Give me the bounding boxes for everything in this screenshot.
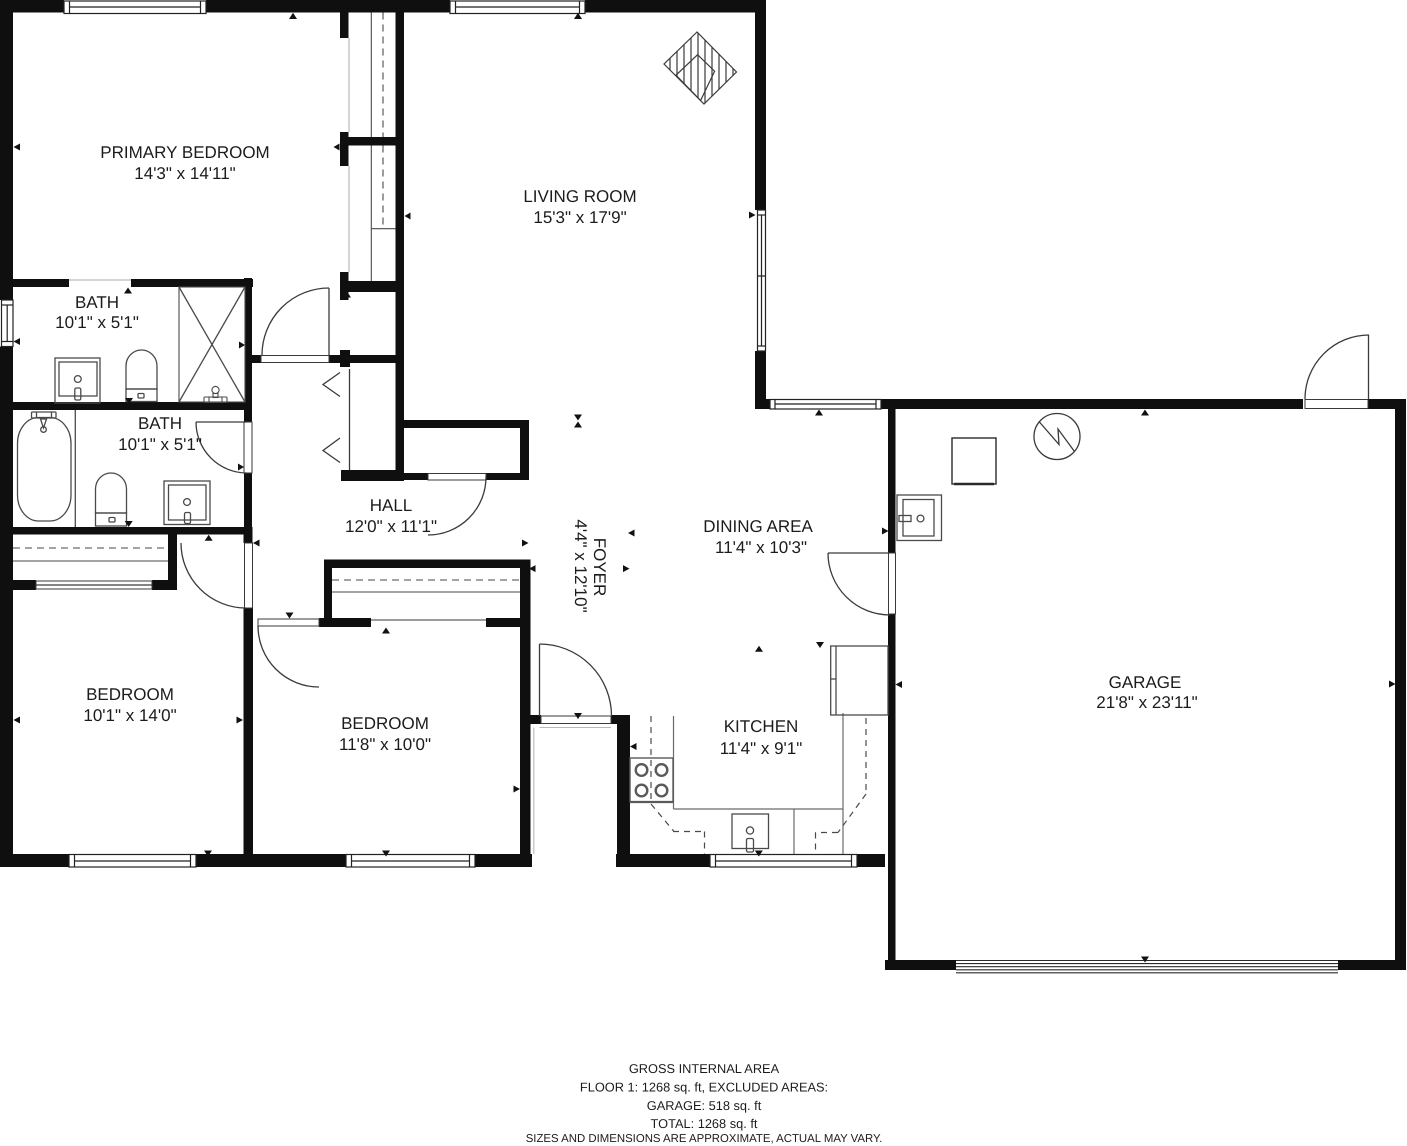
svg-text:BEDROOM: BEDROOM [86,685,174,704]
svg-text:21'8" x 23'11": 21'8" x 23'11" [1096,693,1197,712]
svg-text:11'8" x 10'0": 11'8" x 10'0" [339,735,431,754]
svg-text:4'4" x 12'10": 4'4" x 12'10" [571,519,590,612]
svg-text:14'3" x 14'11": 14'3" x 14'11" [134,164,235,183]
svg-text:PRIMARY BEDROOM: PRIMARY BEDROOM [100,143,269,162]
svg-text:BEDROOM: BEDROOM [341,714,429,733]
svg-text:FOYER: FOYER [590,538,609,597]
svg-text:GROSS INTERNAL AREA: GROSS INTERNAL AREA [629,1061,780,1076]
svg-text:TOTAL: 1268 sq. ft: TOTAL: 1268 sq. ft [651,1116,758,1131]
svg-text:BATH: BATH [75,293,119,312]
svg-text:10'1" x 14'0": 10'1" x 14'0" [83,706,176,725]
svg-text:12'0" x 11'1": 12'0" x 11'1" [345,517,437,536]
svg-text:GARAGE: GARAGE [1109,673,1182,692]
svg-text:FLOOR 1: 1268 sq. ft, EXCLUDED: FLOOR 1: 1268 sq. ft, EXCLUDED AREAS: [580,1080,828,1095]
svg-text:11'4" x 10'3": 11'4" x 10'3" [715,538,807,557]
svg-text:GARAGE: 518 sq. ft: GARAGE: 518 sq. ft [647,1098,762,1113]
svg-text:10'1" x 5'1": 10'1" x 5'1" [118,435,202,454]
svg-text:11'4" x 9'1": 11'4" x 9'1" [720,739,803,758]
svg-text:10'1" x 5'1": 10'1" x 5'1" [55,313,139,332]
svg-text:SIZES AND DIMENSIONS ARE APPRO: SIZES AND DIMENSIONS ARE APPROXIMATE, AC… [526,1133,883,1145]
svg-text:15'3" x 17'9": 15'3" x 17'9" [533,208,626,227]
svg-text:LIVING ROOM: LIVING ROOM [523,187,636,206]
svg-text:BATH: BATH [138,414,182,433]
svg-text:DINING AREA: DINING AREA [703,517,813,536]
svg-text:HALL: HALL [370,496,413,515]
svg-text:KITCHEN: KITCHEN [724,717,799,736]
